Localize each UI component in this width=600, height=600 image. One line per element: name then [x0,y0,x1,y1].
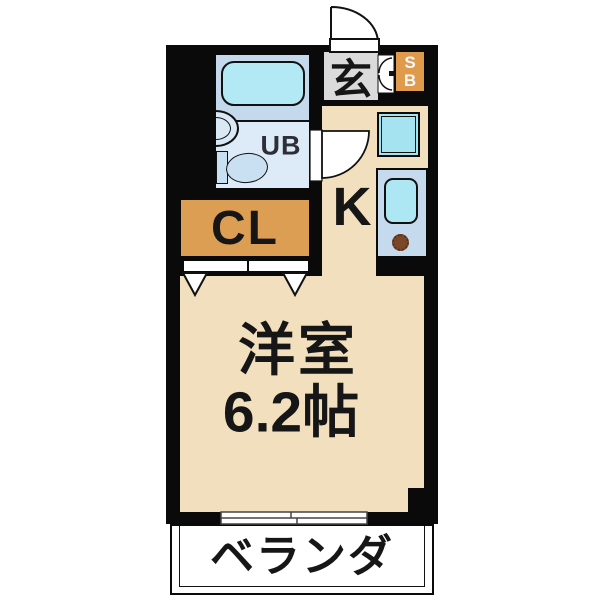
label-entrance: 玄 [330,59,372,101]
bathroom-door-opening [310,130,322,181]
floor-plan: S B [0,0,600,600]
label-closet: CL [211,205,279,253]
label-kitchen: K [333,180,372,234]
label-veranda: ベランダ [210,535,394,579]
shoebox-door-knob [389,71,394,76]
bathroom-door-swing [322,131,369,178]
plan-symbols [0,0,600,600]
label-room-size: 6.2帖 [223,385,359,442]
label-unit-bath: UB [261,133,302,160]
entrance-door-swing [331,7,378,42]
closet-door-arrow-left [183,273,207,295]
closet-door-arrow-right [283,273,307,295]
entrance-door-leaf [330,39,379,52]
label-room-name: 洋室 [238,323,358,380]
